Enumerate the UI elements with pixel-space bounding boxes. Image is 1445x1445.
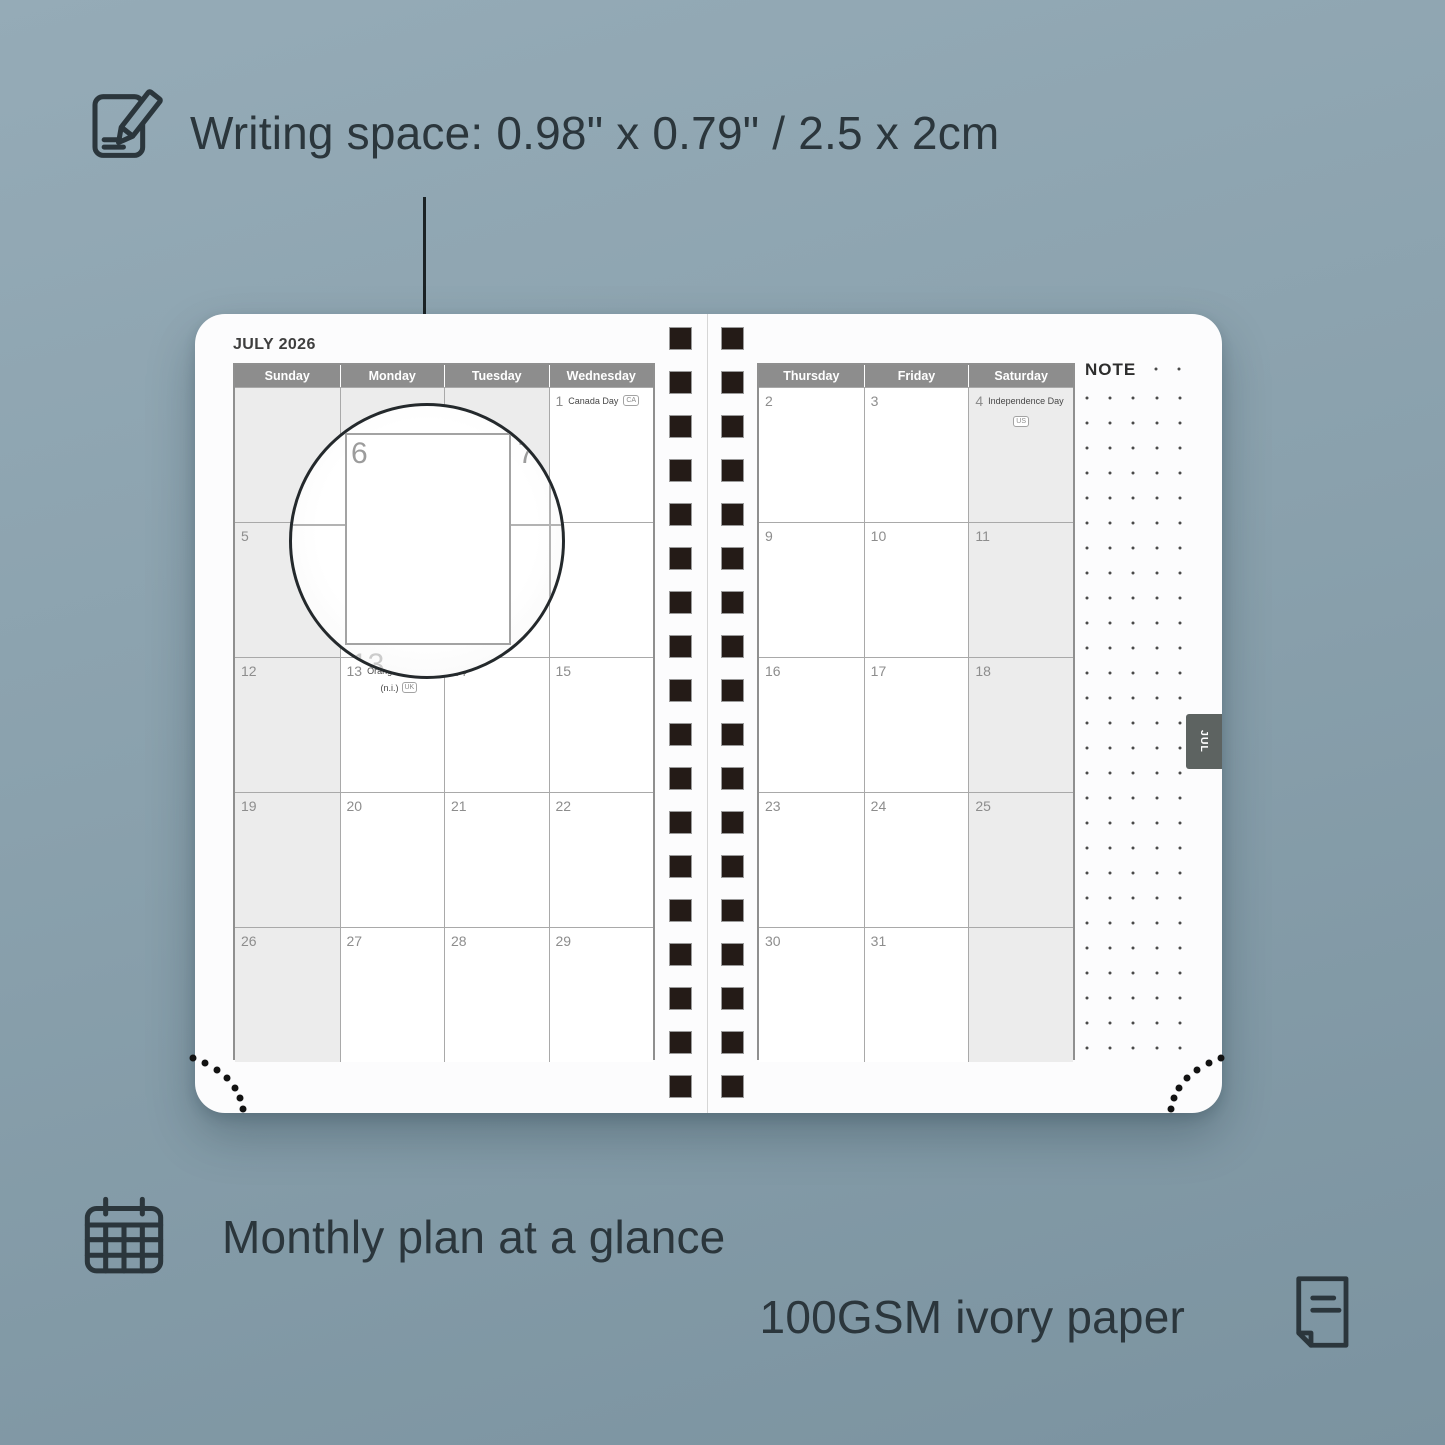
note-dot xyxy=(1132,1047,1135,1050)
note-dot xyxy=(1086,997,1089,1000)
note-dot xyxy=(1178,897,1181,900)
note-dot xyxy=(1155,647,1158,650)
note-dot xyxy=(1155,422,1158,425)
note-dot xyxy=(1086,622,1089,625)
stitch-dot xyxy=(224,1075,231,1082)
note-dot xyxy=(1086,472,1089,475)
note-dot xyxy=(1155,847,1158,850)
note-dot xyxy=(1086,972,1089,975)
month-tab: JUL xyxy=(1186,714,1222,769)
month-tab-label: JUL xyxy=(1198,730,1210,753)
note-dot xyxy=(1155,1022,1158,1025)
note-dot xyxy=(1086,1047,1089,1050)
note-dot xyxy=(1132,772,1135,775)
note-dot xyxy=(1132,822,1135,825)
day-number: 26 xyxy=(241,933,257,949)
day-number: 31 xyxy=(871,933,887,949)
calendar-cell: 14 xyxy=(444,657,549,792)
note-dot xyxy=(1109,1022,1112,1025)
calendar-cell: 1Canada DayCA xyxy=(549,387,654,522)
spiral-hole xyxy=(722,856,743,877)
note-dot xyxy=(1086,722,1089,725)
note-dot xyxy=(1109,872,1112,875)
note-dot xyxy=(1155,822,1158,825)
paper-sheet-icon xyxy=(1276,1268,1360,1356)
calendar-cell: 15 xyxy=(549,657,654,792)
calendar-cell: 9 xyxy=(759,522,864,657)
note-dot xyxy=(1155,722,1158,725)
cell-first-line: 30 xyxy=(765,933,858,949)
day-number: 20 xyxy=(347,798,363,814)
note-dot xyxy=(1178,622,1181,625)
holiday-sublabel: (n.i.) xyxy=(381,680,399,693)
stitch-dot xyxy=(202,1060,209,1067)
spiral-hole xyxy=(722,328,743,349)
calendar-cell: 17 xyxy=(864,657,969,792)
cell-first-line: 10 xyxy=(871,528,963,544)
note-dot xyxy=(1178,922,1181,925)
day-number: 5 xyxy=(241,528,249,544)
note-dot xyxy=(1178,722,1181,725)
calendar-cell: 24 xyxy=(864,792,969,927)
cell-first-line: 31 xyxy=(871,933,963,949)
magnified-day-13: 13 xyxy=(351,650,384,679)
day-number: 2 xyxy=(765,393,773,409)
writing-space-outline xyxy=(345,433,511,645)
calendar-cell: 10 xyxy=(864,522,969,657)
spiral-hole xyxy=(722,680,743,701)
product-image-scene: Writing space: 0.98" x 0.79" / 2.5 x 2cm… xyxy=(0,0,1445,1445)
calendar-cell: 16 xyxy=(759,657,864,792)
badge-row: US xyxy=(975,410,1067,428)
note-dot xyxy=(1132,722,1135,725)
magnified-day-6: 6 xyxy=(351,439,368,469)
paper-caption: 100GSM ivory paper xyxy=(760,1291,1185,1343)
calendar-cell: 22 xyxy=(549,792,654,927)
note-dot xyxy=(1109,422,1112,425)
note-dot xyxy=(1155,747,1158,750)
calendar-cell: 20 xyxy=(340,792,445,927)
note-dot xyxy=(1086,547,1089,550)
note-dot xyxy=(1109,897,1112,900)
spiral-hole xyxy=(670,988,691,1009)
note-dot xyxy=(1086,672,1089,675)
spiral-hole xyxy=(722,812,743,833)
cell-first-line: 9 xyxy=(765,528,858,544)
day-number: 9 xyxy=(765,528,773,544)
note-dot xyxy=(1086,872,1089,875)
stitch-dot xyxy=(214,1067,221,1074)
day-number: 24 xyxy=(871,798,887,814)
day-header: Thursday xyxy=(759,365,864,387)
writing-space-caption: Writing space: 0.98" x 0.79" / 2.5 x 2cm xyxy=(190,107,999,159)
spiral-hole xyxy=(670,812,691,833)
stitch-dot xyxy=(1206,1060,1213,1067)
note-dot xyxy=(1109,472,1112,475)
cell-first-line: 23 xyxy=(765,798,858,814)
calendar-cell: 2 xyxy=(759,387,864,522)
note-dot xyxy=(1178,1022,1181,1025)
note-dot xyxy=(1155,497,1158,500)
day-number: 18 xyxy=(975,663,991,679)
spiral-hole xyxy=(722,1032,743,1053)
holiday-label: Independence Day xyxy=(988,393,1064,406)
stitch-dot xyxy=(1168,1106,1175,1113)
note-dot xyxy=(1109,747,1112,750)
note-dot xyxy=(1132,647,1135,650)
note-dot xyxy=(1178,472,1181,475)
note-dot xyxy=(1132,672,1135,675)
note-heading: NOTE xyxy=(1085,360,1136,380)
note-dot xyxy=(1155,922,1158,925)
note-dot xyxy=(1132,747,1135,750)
cell-first-line: 3 xyxy=(871,393,963,409)
stitch-dot xyxy=(1184,1075,1191,1082)
note-dot xyxy=(1109,997,1112,1000)
calendar-cell: 30 xyxy=(759,927,864,1062)
stitch-dot xyxy=(240,1106,247,1113)
note-dot xyxy=(1155,797,1158,800)
spiral-binding xyxy=(670,328,743,1097)
note-dot xyxy=(1132,697,1135,700)
day-header: Friday xyxy=(864,365,969,387)
note-dot xyxy=(1178,597,1181,600)
spiral-hole xyxy=(670,372,691,393)
note-dot xyxy=(1109,947,1112,950)
country-badge: UK xyxy=(402,682,418,693)
note-dot xyxy=(1132,1022,1135,1025)
note-dot xyxy=(1132,972,1135,975)
note-dot xyxy=(1155,522,1158,525)
spiral-hole xyxy=(670,416,691,437)
note-dot xyxy=(1178,772,1181,775)
cell-first-line: 29 xyxy=(556,933,648,949)
calendar-cell xyxy=(968,927,1073,1062)
calendar-cell: 21 xyxy=(444,792,549,927)
note-dot xyxy=(1178,497,1181,500)
note-dot xyxy=(1086,847,1089,850)
note-dot xyxy=(1109,622,1112,625)
note-dot xyxy=(1086,397,1089,400)
monthly-plan-caption: Monthly plan at a glance xyxy=(222,1211,725,1263)
note-dot xyxy=(1132,447,1135,450)
spiral-hole xyxy=(670,548,691,569)
note-dot xyxy=(1132,597,1135,600)
note-dot xyxy=(1132,397,1135,400)
holiday-subline: (n.i.)UK xyxy=(381,680,439,693)
note-dot xyxy=(1132,872,1135,875)
note-dot xyxy=(1155,1047,1158,1050)
day-number: 29 xyxy=(556,933,572,949)
spiral-hole xyxy=(722,416,743,437)
day-number: 27 xyxy=(347,933,363,949)
note-dot xyxy=(1155,472,1158,475)
day-header: Monday xyxy=(340,365,445,387)
note-dot xyxy=(1086,772,1089,775)
note-dot xyxy=(1086,797,1089,800)
note-dot xyxy=(1086,522,1089,525)
note-dot xyxy=(1109,447,1112,450)
day-number: 19 xyxy=(241,798,257,814)
note-dot xyxy=(1178,847,1181,850)
note-dot xyxy=(1178,547,1181,550)
note-dot xyxy=(1086,947,1089,950)
note-dot xyxy=(1132,422,1135,425)
note-dot xyxy=(1086,897,1089,900)
note-dot xyxy=(1132,947,1135,950)
stitch-dot xyxy=(1176,1085,1183,1092)
cell-first-line: 22 xyxy=(556,798,648,814)
calendar-cell: 4Independence DayUS xyxy=(968,387,1073,522)
calendar-cell: 27 xyxy=(340,927,445,1062)
note-dot xyxy=(1109,822,1112,825)
cell-first-line: 11 xyxy=(975,528,1067,544)
calendar-cell: 19 xyxy=(235,792,340,927)
spiral-hole xyxy=(722,768,743,789)
note-dot xyxy=(1132,522,1135,525)
note-dot xyxy=(1155,697,1158,700)
magnified-grid-line-vertical xyxy=(549,406,551,679)
note-dot xyxy=(1109,522,1112,525)
country-badge: CA xyxy=(623,395,639,406)
spiral-hole xyxy=(670,460,691,481)
note-dot xyxy=(1178,672,1181,675)
note-dot xyxy=(1155,572,1158,575)
spiral-hole xyxy=(722,900,743,921)
stitch-dot xyxy=(1194,1067,1201,1074)
note-dot xyxy=(1109,922,1112,925)
month-title: JULY 2026 xyxy=(233,336,316,354)
note-dot xyxy=(1086,497,1089,500)
note-dot xyxy=(1178,822,1181,825)
note-dot xyxy=(1155,547,1158,550)
spiral-hole xyxy=(722,372,743,393)
pencil-note-icon xyxy=(84,82,172,170)
note-dot xyxy=(1086,422,1089,425)
note-dot xyxy=(1178,797,1181,800)
spiral-hole xyxy=(670,504,691,525)
cell-first-line: 19 xyxy=(241,798,334,814)
note-dot xyxy=(1155,622,1158,625)
note-dot xyxy=(1155,772,1158,775)
note-dot xyxy=(1109,722,1112,725)
note-dot xyxy=(1178,997,1181,1000)
spiral-hole xyxy=(670,724,691,745)
cell-first-line: 18 xyxy=(975,663,1067,679)
note-dot xyxy=(1132,622,1135,625)
day-number: 15 xyxy=(556,663,572,679)
note-dot xyxy=(1086,922,1089,925)
cell-first-line: 4Independence Day xyxy=(975,393,1067,409)
note-dot xyxy=(1132,472,1135,475)
spiral-hole xyxy=(670,900,691,921)
spiral-hole xyxy=(722,724,743,745)
spiral-hole xyxy=(722,636,743,657)
note-dot xyxy=(1178,447,1181,450)
day-number: 21 xyxy=(451,798,467,814)
spiral-hole xyxy=(670,636,691,657)
calendar-cell: 12 xyxy=(235,657,340,792)
day-header: Tuesday xyxy=(444,365,549,387)
note-dot xyxy=(1086,1022,1089,1025)
note-dot xyxy=(1109,647,1112,650)
note-dot xyxy=(1155,597,1158,600)
stitch-dot xyxy=(237,1095,244,1102)
note-dot xyxy=(1178,572,1181,575)
spiral-hole xyxy=(722,548,743,569)
spiral-hole xyxy=(670,680,691,701)
day-header: Sunday xyxy=(235,365,340,387)
day-header: Wednesday xyxy=(549,365,654,387)
note-dot xyxy=(1178,747,1181,750)
note-dot xyxy=(1178,368,1181,371)
note-dot xyxy=(1086,647,1089,650)
stitch-dot xyxy=(1171,1095,1178,1102)
note-dot xyxy=(1132,797,1135,800)
spiral-hole xyxy=(670,856,691,877)
note-dot xyxy=(1132,922,1135,925)
note-dot xyxy=(1155,872,1158,875)
note-dot xyxy=(1109,672,1112,675)
note-dot xyxy=(1155,997,1158,1000)
day-number: 16 xyxy=(765,663,781,679)
calendar-right-page: ThursdayFridaySaturday234Independence Da… xyxy=(757,363,1075,1060)
day-number: 1 xyxy=(556,393,564,409)
spiral-hole xyxy=(722,1076,743,1097)
spiral-hole xyxy=(722,592,743,613)
day-header: Saturday xyxy=(968,365,1073,387)
day-number: 4 xyxy=(975,393,983,409)
day-number: 30 xyxy=(765,933,781,949)
calendar-cell: 23 xyxy=(759,792,864,927)
note-dot xyxy=(1109,1047,1112,1050)
note-dot xyxy=(1178,522,1181,525)
day-number: 3 xyxy=(871,393,879,409)
day-number: 28 xyxy=(451,933,467,949)
note-dot xyxy=(1086,697,1089,700)
note-dot xyxy=(1109,547,1112,550)
note-dot xyxy=(1178,697,1181,700)
note-dot xyxy=(1178,1047,1181,1050)
spiral-hole xyxy=(670,1032,691,1053)
note-dot xyxy=(1178,422,1181,425)
day-number: 12 xyxy=(241,663,257,679)
note-dot xyxy=(1109,972,1112,975)
day-number: 22 xyxy=(556,798,572,814)
note-dot xyxy=(1086,747,1089,750)
note-dot xyxy=(1132,572,1135,575)
note-dot xyxy=(1178,972,1181,975)
magnifier-circle: 6 7 13 xyxy=(289,403,565,679)
note-dot xyxy=(1109,797,1112,800)
note-dot xyxy=(1086,597,1089,600)
note-dot xyxy=(1155,447,1158,450)
note-dot xyxy=(1086,572,1089,575)
cell-first-line: 1Canada DayCA xyxy=(556,393,648,409)
note-dot xyxy=(1155,397,1158,400)
note-dot xyxy=(1132,897,1135,900)
note-dot xyxy=(1132,847,1135,850)
note-dot xyxy=(1155,672,1158,675)
calendar-cell: 28 xyxy=(444,927,549,1062)
calendar-cell: 29 xyxy=(549,927,654,1062)
day-number: 25 xyxy=(975,798,991,814)
calendar-cell: 3 xyxy=(864,387,969,522)
cell-first-line: 24 xyxy=(871,798,963,814)
spiral-hole xyxy=(722,504,743,525)
note-dot xyxy=(1178,397,1181,400)
day-number: 11 xyxy=(975,528,990,544)
spiral-hole xyxy=(722,944,743,965)
calendar-cell: 18 xyxy=(968,657,1073,792)
holiday-label: Canada Day xyxy=(568,393,618,406)
note-dot xyxy=(1155,947,1158,950)
note-dot xyxy=(1109,397,1112,400)
calendar-cell: 11 xyxy=(968,522,1073,657)
stitch-dot xyxy=(1218,1055,1225,1062)
note-dot xyxy=(1109,572,1112,575)
cell-first-line: 2 xyxy=(765,393,858,409)
cell-first-line: 25 xyxy=(975,798,1067,814)
note-dot xyxy=(1178,947,1181,950)
country-badge: US xyxy=(1013,416,1029,427)
calendar-grid-icon xyxy=(80,1192,168,1280)
note-dot xyxy=(1178,872,1181,875)
day-number: 10 xyxy=(871,528,887,544)
stitch-dot xyxy=(190,1055,197,1062)
day-number: 23 xyxy=(765,798,781,814)
cell-first-line: 20 xyxy=(347,798,439,814)
spiral-hole xyxy=(670,328,691,349)
cell-first-line: 26 xyxy=(241,933,334,949)
note-dot xyxy=(1109,772,1112,775)
stitch-dot xyxy=(232,1085,239,1092)
cell-first-line: 12 xyxy=(241,663,334,679)
cell-first-line: 28 xyxy=(451,933,543,949)
note-dot xyxy=(1109,497,1112,500)
cell-first-line: 17 xyxy=(871,663,963,679)
cell-first-line: 8 xyxy=(556,528,648,544)
calendar-cell: 26 xyxy=(235,927,340,1062)
spiral-hole xyxy=(670,944,691,965)
note-dot xyxy=(1086,822,1089,825)
spiral-hole xyxy=(670,768,691,789)
note-dot xyxy=(1109,697,1112,700)
note-dot xyxy=(1132,547,1135,550)
spiral-hole xyxy=(670,592,691,613)
note-dot xyxy=(1155,897,1158,900)
note-dot xyxy=(1086,447,1089,450)
spiral-hole xyxy=(670,1076,691,1097)
note-dot xyxy=(1155,368,1158,371)
cell-first-line: 15 xyxy=(556,663,648,679)
calendar-cell: 31 xyxy=(864,927,969,1062)
note-dot xyxy=(1132,997,1135,1000)
spiral-hole xyxy=(722,460,743,481)
calendar-cell: 25 xyxy=(968,792,1073,927)
day-number: 17 xyxy=(871,663,887,679)
note-dot xyxy=(1109,847,1112,850)
cell-first-line: 16 xyxy=(765,663,858,679)
spiral-hole xyxy=(722,988,743,1009)
cell-first-line: 27 xyxy=(347,933,439,949)
note-dot xyxy=(1109,597,1112,600)
note-dot xyxy=(1178,647,1181,650)
note-dot xyxy=(1155,972,1158,975)
magnified-day-7: 7 xyxy=(518,439,535,469)
cell-first-line: 21 xyxy=(451,798,543,814)
note-dot xyxy=(1132,497,1135,500)
